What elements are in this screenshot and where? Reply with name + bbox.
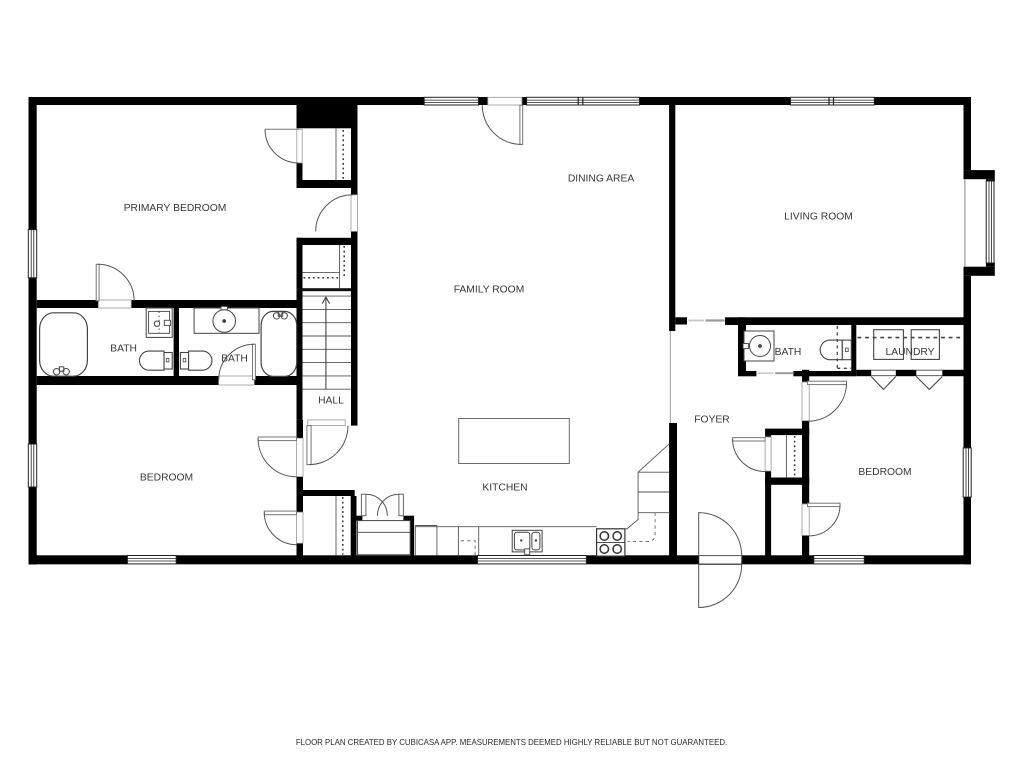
svg-text:BATH: BATH <box>221 354 248 365</box>
svg-text:BATH: BATH <box>110 344 137 355</box>
svg-text:BATH: BATH <box>775 347 802 358</box>
svg-text:FAMILY ROOM: FAMILY ROOM <box>454 285 525 296</box>
svg-text:LIVING ROOM: LIVING ROOM <box>784 212 853 223</box>
svg-text:HALL: HALL <box>318 396 344 407</box>
svg-text:LAUNDRY: LAUNDRY <box>885 347 934 358</box>
svg-text:FOYER: FOYER <box>694 415 729 426</box>
svg-text:FLOOR PLAN CREATED BY CUBICASA: FLOOR PLAN CREATED BY CUBICASA APP. MEAS… <box>296 738 727 747</box>
svg-text:DINING AREA: DINING AREA <box>568 174 635 185</box>
svg-text:KITCHEN: KITCHEN <box>482 483 527 494</box>
svg-text:BEDROOM: BEDROOM <box>858 467 911 478</box>
svg-text:BEDROOM: BEDROOM <box>140 473 193 484</box>
svg-text:PRIMARY BEDROOM: PRIMARY BEDROOM <box>124 203 227 214</box>
